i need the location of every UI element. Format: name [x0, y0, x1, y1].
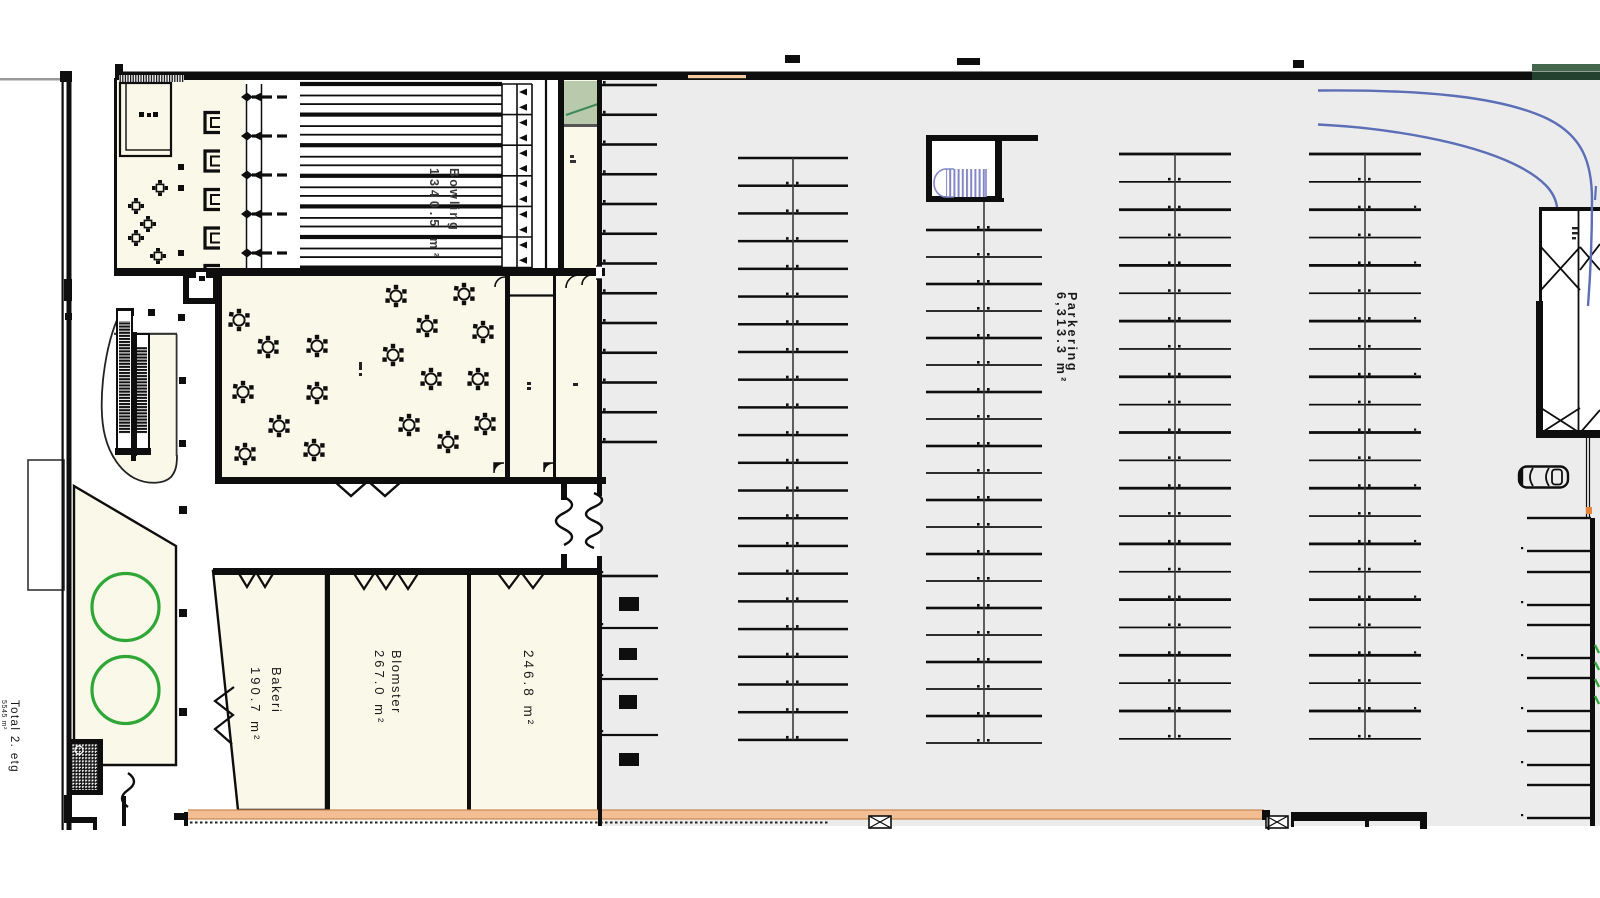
svg-text:190.7 m²: 190.7 m²	[248, 667, 263, 742]
svg-text:Total 2. etg: Total 2. etg	[8, 700, 20, 773]
svg-text:267.0 m²: 267.0 m²	[372, 650, 387, 725]
svg-text:5545 m²: 5545 m²	[0, 700, 7, 730]
svg-text:Bowling: Bowling	[447, 168, 461, 232]
svg-text:6,313.3 m²: 6,313.3 m²	[1054, 292, 1068, 384]
svg-text:246.8 m²: 246.8 m²	[521, 650, 536, 727]
svg-text:Blomster: Blomster	[389, 650, 404, 714]
svg-text:Bakeri: Bakeri	[269, 667, 284, 713]
svg-text:1340.5 m²: 1340.5 m²	[427, 168, 441, 261]
